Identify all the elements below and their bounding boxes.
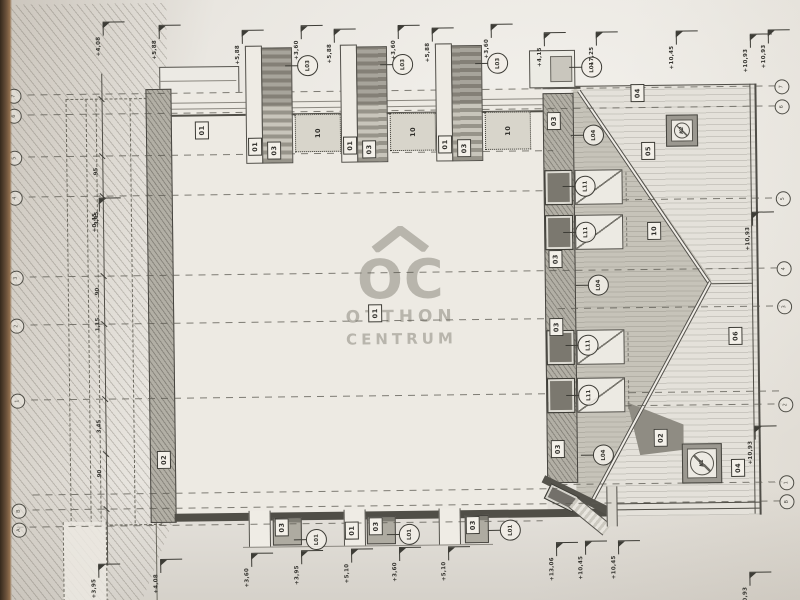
elevation-marker: +7,25 (594, 31, 625, 73)
elevation-value: +5,88 (152, 40, 158, 60)
grid-axis-bubble: A (12, 523, 27, 538)
elevation-marker: +5,88 (430, 27, 461, 69)
grid-axis-bubble: 3 (777, 299, 792, 314)
room-number-label: 03 (547, 112, 561, 130)
elevation-marker-stem (103, 23, 104, 36)
room-number-label: 05 (641, 142, 655, 160)
elevation-marker: +10,45 (583, 540, 614, 582)
room-number-label: 03 (275, 518, 289, 536)
elevation-marker: +0,45 (97, 197, 128, 239)
room-number-label: 04 (731, 459, 745, 477)
elevation-value: +10,45 (669, 46, 675, 70)
elevation-value: +5,88 (425, 43, 431, 63)
elevation-marker-stem (749, 573, 750, 586)
room-number-label: 03 (267, 141, 281, 159)
opening-tag-circle: L04 (593, 444, 614, 465)
chimney-flue-circle: K1 (690, 451, 714, 475)
grid-axis-bubble: 1 (779, 475, 794, 490)
elevation-marker-stem (351, 550, 352, 563)
elevation-marker-stem (301, 26, 302, 39)
elevation-marker-stem (251, 554, 252, 567)
room-number-label: 06 (728, 327, 742, 345)
opening-tag-circle: L11 (578, 385, 599, 406)
elevation-marker: +4,15 (542, 32, 573, 74)
watermark-line2: CENTRUM (326, 329, 476, 349)
elevation-marker-stem (301, 551, 302, 564)
grid-axis-bubble: 4 (777, 261, 792, 276)
grid-axis-bubble: B (11, 504, 26, 519)
grid-axis-bubble: 2 (778, 397, 793, 412)
door-opening (249, 511, 271, 547)
elevation-marker: +3,60 (397, 547, 428, 589)
elevation-marker-stem (491, 25, 492, 38)
grid-axis-bubble: 1 (10, 394, 25, 409)
watermark-line1: OTTHON (326, 306, 476, 328)
opening-tag-circle: L01 (399, 524, 420, 545)
elevation-marker-stem (432, 29, 433, 42)
elevation-value: +5,88 (327, 44, 333, 64)
room-number-label: 01 (368, 304, 382, 322)
opening-tag-circle: L01 (500, 520, 521, 541)
elevation-marker: +3,60 (249, 552, 280, 594)
elevation-value: +10,93 (745, 227, 751, 251)
opening-tag-circle: L11 (574, 176, 595, 197)
room-number-label: 03 (369, 517, 383, 535)
elevation-marker: +4,08 (101, 21, 132, 63)
dimension-number: 95 (93, 168, 99, 176)
elevation-marker: +10,93 (748, 33, 779, 75)
room-number-label: 01 (438, 135, 452, 153)
elevation-value: +3,60 (244, 568, 250, 588)
elevation-marker-stem (544, 33, 545, 46)
chimney-symbol: K2 (666, 114, 698, 146)
room-number-label: 03 (466, 516, 480, 534)
elevation-value: +7,25 (589, 47, 595, 67)
elevation-value: +10,93 (743, 587, 749, 600)
elevation-value: +3,95 (294, 565, 300, 585)
chimney-flue-circle: K2 (674, 122, 690, 138)
elevation-value: +10,93 (748, 441, 754, 465)
elevation-value: +5,10 (344, 564, 350, 584)
dimension-number: 90 (95, 288, 101, 296)
room-number-label: 01 (345, 522, 359, 540)
photo-of-floor-plan: OC OTTHON CENTRUM 7654321BA7654321B 10 0… (0, 0, 800, 600)
watermark-logo: OC (325, 255, 476, 305)
chimney-symbol: K1 (682, 443, 722, 483)
elevation-marker: +3,95 (96, 563, 127, 600)
elevation-value: +3,60 (391, 40, 397, 60)
attic-space-label: 10 (295, 114, 341, 153)
opening-tag-circle: L11 (575, 222, 596, 243)
room-number-label: 03 (548, 250, 562, 268)
room-number-label: 01 (248, 138, 262, 156)
elevation-marker-stem (242, 31, 243, 44)
elevation-value: +3,60 (392, 562, 398, 582)
elevation-marker-stem (585, 542, 586, 555)
elevation-marker: +5,88 (332, 28, 363, 70)
dimension-number: 3,45 (96, 420, 102, 434)
room-number-label: 04 (630, 84, 644, 102)
elevation-value: +5,88 (235, 45, 241, 65)
room-number-label: 02 (157, 451, 171, 469)
elevation-marker: +10,93 (750, 211, 781, 253)
attic-space-label: 10 (485, 111, 531, 150)
elevation-marker-stem (556, 543, 557, 556)
elevation-marker-stem (398, 26, 399, 39)
room-number-label: 10 (647, 222, 661, 240)
elevation-marker: +10,45 (674, 30, 705, 72)
elevation-value: +4,15 (537, 47, 543, 67)
watermark-otthon-centrum: OC OTTHON CENTRUM (325, 225, 476, 348)
elevation-value: +10,45 (611, 555, 617, 579)
room-number-label: 02 (654, 429, 668, 447)
elevation-marker-stem (98, 565, 99, 578)
elevation-value: +5,10 (441, 561, 447, 581)
room-number-label: 03 (549, 318, 563, 336)
elevation-value: +4,08 (153, 574, 159, 594)
photo-left-edge (0, 0, 12, 600)
dimension-number: 3,45 (94, 212, 100, 226)
grid-axis-bubble: 6 (775, 99, 790, 114)
attic-space-label: 10 (390, 113, 436, 152)
elevation-value: +10,45 (578, 556, 584, 580)
room-number-label: 03 (362, 140, 376, 158)
elevation-marker: +5,88 (240, 30, 271, 72)
opening-tag-circle: L11 (577, 335, 598, 356)
room-number-label: 03 (457, 139, 471, 157)
elevation-marker: +3,60 (489, 24, 520, 66)
elevation-value: +13,06 (549, 557, 555, 581)
elevation-marker-stem (750, 35, 751, 48)
floor-plan-drawing: OC OTTHON CENTRUM 7654321BA7654321B 10 0… (0, 0, 800, 600)
grid-axis-bubble: 7 (774, 79, 789, 94)
opening-tag-circle: L04 (588, 274, 609, 295)
elevation-marker-stem (160, 560, 161, 573)
bay-pillar (606, 486, 617, 526)
elevation-marker: +4,08 (158, 559, 189, 600)
elevation-marker: +5,10 (446, 546, 477, 588)
elevation-marker: +10,45 (616, 540, 647, 582)
opening-tag-circle: L04 (583, 124, 604, 145)
elevation-value: +3,95 (91, 579, 97, 599)
elevation-marker: +5,10 (349, 548, 380, 590)
dimension-number: 90 (97, 470, 103, 478)
elevation-marker: +3,95 (299, 550, 330, 592)
room-number-label: 03 (551, 440, 565, 458)
elevation-marker-stem (334, 30, 335, 43)
elevation-marker-stem (755, 427, 756, 440)
grid-axis-bubble: B (779, 494, 794, 509)
room-number-label: 01 (195, 121, 209, 139)
elevation-marker-stem (159, 26, 160, 39)
elevation-marker: +3,60 (299, 25, 330, 67)
elevation-value: +3,60 (294, 40, 300, 60)
room-number-label: 01 (343, 137, 357, 155)
elevation-marker-stem (676, 32, 677, 45)
elevation-marker-stem (99, 199, 100, 212)
elevation-value: +10,93 (743, 49, 749, 73)
dimension-number: 1,15 (95, 318, 101, 332)
elevation-marker-stem (618, 541, 619, 554)
elevation-value: +3,60 (484, 39, 490, 59)
elevation-marker-stem (448, 547, 449, 560)
elevation-marker-stem (596, 33, 597, 46)
grid-axis-bubble: 5 (776, 191, 791, 206)
elevation-value: +4,08 (96, 37, 102, 57)
elevation-marker-stem (399, 548, 400, 561)
opening-tag-circle: L01 (306, 529, 327, 550)
door-opening (439, 508, 461, 544)
elevation-marker: +10,93 (753, 425, 784, 467)
elevation-marker: +10,93 (747, 571, 778, 600)
elevation-marker-stem (752, 213, 753, 226)
wall-window (544, 170, 572, 205)
right-wall (542, 93, 578, 483)
elevation-marker: +3,60 (396, 25, 427, 67)
elevation-marker: +5,88 (157, 25, 188, 67)
